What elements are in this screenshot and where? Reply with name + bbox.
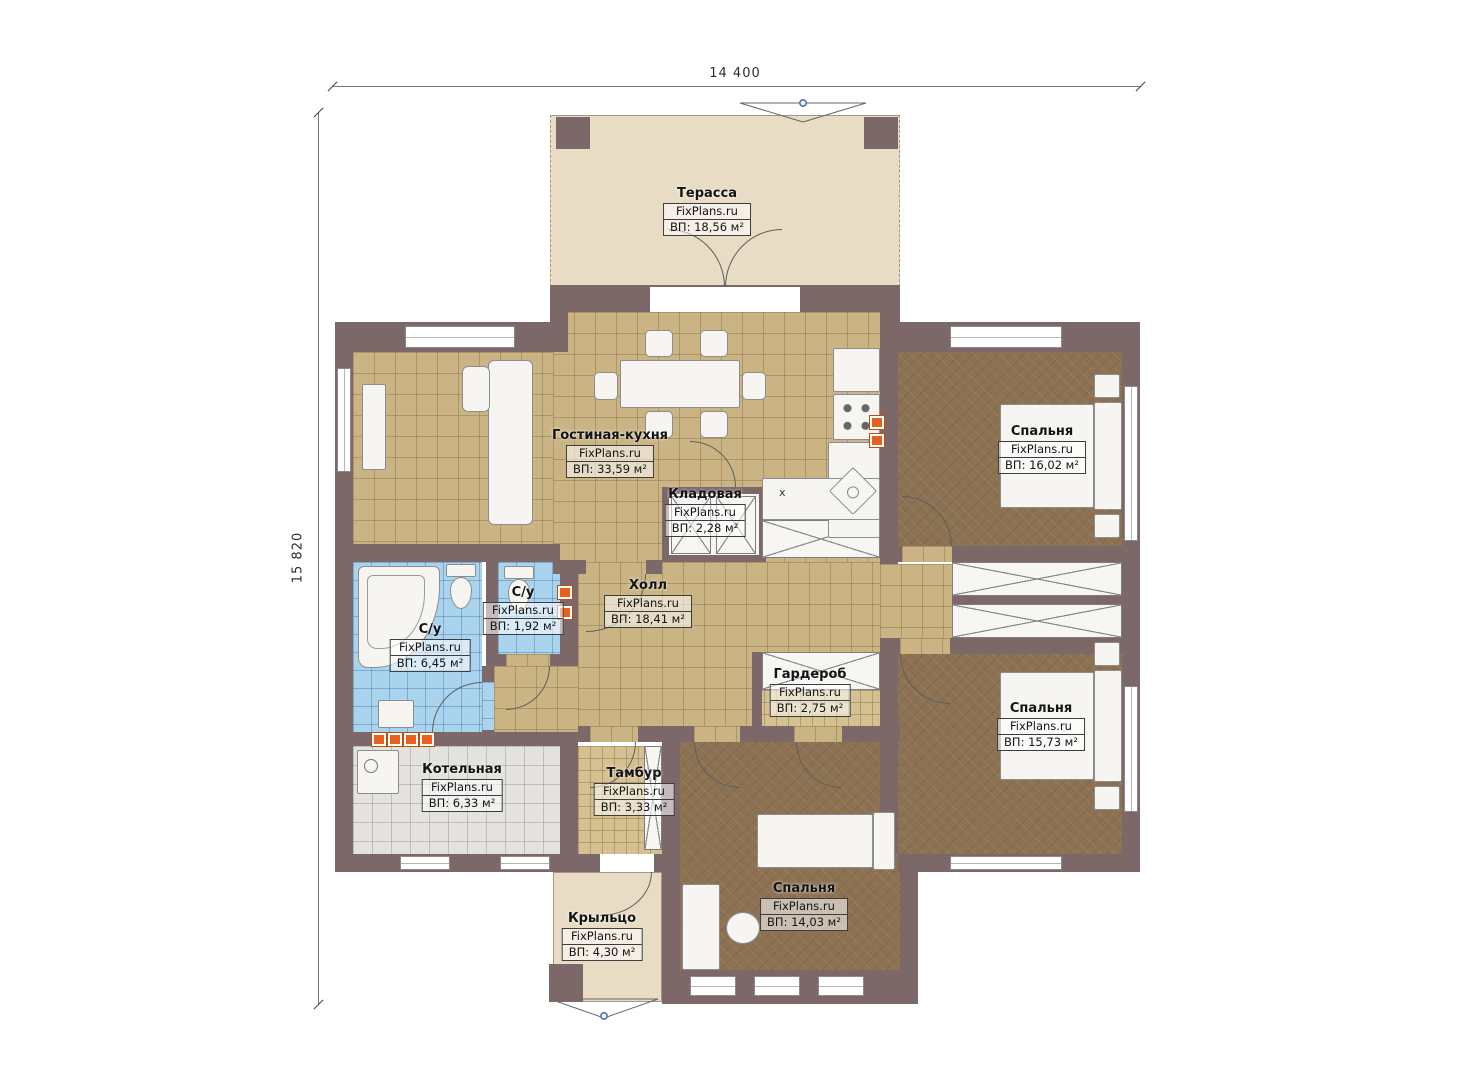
door-opening [590, 726, 638, 742]
window [950, 856, 1062, 870]
room-area: ВП: 18,41 м² [605, 612, 691, 627]
radiator-marker [420, 733, 434, 746]
room-info-box: FixPlans.ru ВП: 14,03 м² [760, 898, 848, 931]
window [400, 856, 450, 870]
window [1124, 386, 1138, 541]
brand-text: FixPlans.ru [666, 505, 745, 521]
wall [353, 732, 578, 746]
brand-text: FixPlans.ru [999, 442, 1085, 458]
brand-text: FixPlans.ru [484, 603, 563, 619]
room-area: ВП: 2,28 м² [666, 521, 745, 536]
window [405, 326, 515, 348]
nightstand [1094, 642, 1120, 666]
radiator-marker [870, 434, 884, 447]
dimension-label-top: 14 400 [660, 66, 810, 81]
washing-machine [378, 700, 414, 728]
brand-text: FixPlans.ru [567, 446, 653, 462]
window [754, 976, 800, 996]
wall [553, 560, 586, 574]
radiator-marker [372, 733, 386, 746]
room-area: ВП: 4,30 м² [563, 945, 642, 960]
room-info-box: FixPlans.ru ВП: 16,02 м² [998, 441, 1086, 474]
room-area: ВП: 18,56 м² [664, 220, 750, 235]
room-label-bedroom3: Спальня FixPlans.ru ВП: 14,03 м² [760, 881, 848, 931]
brand-text: FixPlans.ru [595, 784, 674, 800]
brand-text: FixPlans.ru [605, 596, 691, 612]
toilet-tank [504, 566, 534, 579]
radiator-marker [388, 733, 402, 746]
bed [757, 814, 873, 868]
desk-chair [726, 912, 760, 944]
brand-text: FixPlans.ru [563, 929, 642, 945]
brand-text: FixPlans.ru [391, 640, 470, 656]
room-area: ВП: 3,33 м² [595, 800, 674, 815]
terrace-door-opening [650, 287, 800, 312]
bed-headboard [1094, 402, 1122, 510]
chair [742, 372, 766, 400]
room-name: Котельная [422, 762, 503, 777]
brand-text: FixPlans.ru [761, 899, 847, 915]
floor-plan-canvas: 14 400 15 820 [0, 0, 1474, 1080]
window [500, 856, 550, 870]
chair [700, 330, 728, 357]
tv-unit [362, 384, 386, 470]
door-opening [794, 726, 842, 742]
room-label-bedroom1: Спальня FixPlans.ru ВП: 16,02 м² [998, 424, 1086, 474]
toilet-tank [446, 564, 476, 577]
brand-text: FixPlans.ru [771, 685, 850, 701]
room-area: ВП: 15,73 м² [998, 735, 1084, 750]
closet [952, 604, 1122, 638]
door-opening [600, 854, 654, 872]
bed-headboard [1094, 670, 1122, 782]
door-opening [506, 654, 550, 666]
window [950, 326, 1062, 348]
room-name: Гардероб [770, 667, 851, 682]
brand-text: FixPlans.ru [664, 204, 750, 220]
sofa-chaise [462, 366, 490, 412]
wall [560, 746, 578, 854]
sofa [488, 360, 533, 525]
room-info-box: FixPlans.ru ВП: 6,33 м² [422, 779, 503, 812]
room-label-living-kitchen: Гостиная-кухня FixPlans.ru ВП: 33,59 м² [552, 428, 668, 478]
room-info-box: FixPlans.ru ВП: 3,33 м² [594, 783, 675, 816]
room-name: С/у [390, 622, 471, 637]
dimension-line-top [332, 86, 1140, 87]
room-info-box: FixPlans.ru ВП: 18,41 м² [604, 595, 692, 628]
door-opening [694, 726, 740, 742]
room-info-box: FixPlans.ru ВП: 15,73 м² [997, 718, 1085, 751]
room-name: Крыльцо [562, 911, 643, 926]
room-label-terrace: Терасса FixPlans.ru ВП: 18,56 м² [663, 186, 751, 236]
desk [682, 884, 720, 970]
room-name: Кладовая [665, 487, 746, 502]
room-label-wardrobe: Гардероб FixPlans.ru ВП: 2,75 м² [770, 667, 851, 717]
room-label-hall: Холл FixPlans.ru ВП: 18,41 м² [604, 578, 692, 628]
brand-text: FixPlans.ru [423, 780, 502, 796]
kitchen-cabinet [833, 348, 880, 392]
chair [700, 411, 728, 438]
radiator-marker [870, 416, 884, 429]
nightstand [1094, 786, 1120, 810]
dimension-line-left [318, 112, 319, 1004]
nightstand [1094, 374, 1120, 398]
room-name: Спальня [760, 881, 848, 896]
room-name: Холл [604, 578, 692, 593]
window [818, 976, 864, 996]
room-area: ВП: 33,59 м² [567, 462, 653, 477]
room-info-box: FixPlans.ru ВП: 4,30 м² [562, 928, 643, 961]
room-name: Тамбур [594, 766, 675, 781]
room-label-porch: Крыльцо FixPlans.ru ВП: 4,30 м² [562, 911, 643, 961]
hall-corridor-floor [880, 564, 952, 638]
room-name: С/у [483, 585, 564, 600]
room-info-box: FixPlans.ru ВП: 33,59 м² [566, 445, 654, 478]
room-label-tambour: Тамбур FixPlans.ru ВП: 3,33 м² [594, 766, 675, 816]
window [1124, 686, 1138, 812]
room-name: Спальня [997, 701, 1085, 716]
chair [594, 372, 618, 400]
door-opening [900, 638, 950, 654]
dining-table [620, 360, 740, 408]
terrace-pillar [556, 117, 590, 149]
room-info-box: FixPlans.ru ВП: 18,56 м² [663, 203, 751, 236]
chair [645, 330, 673, 357]
room-name: Спальня [998, 424, 1086, 439]
boiler-unit [357, 750, 399, 794]
door-opening [482, 682, 494, 730]
wall [353, 544, 560, 562]
room-label-bathroom1: С/у FixPlans.ru ВП: 6,45 м² [390, 622, 471, 672]
room-area: ВП: 14,03 м² [761, 915, 847, 930]
nightstand [1094, 514, 1120, 538]
closet [952, 562, 1122, 596]
room-info-box: FixPlans.ru ВП: 1,92 м² [483, 602, 564, 635]
wall [752, 652, 762, 726]
entry-marker-top [736, 95, 872, 127]
counter-mark: х [779, 486, 786, 499]
dimension-label-left: 15 820 [291, 518, 306, 598]
room-area: ВП: 6,33 м² [423, 796, 502, 811]
terrace-pillar [864, 117, 898, 149]
room-info-box: FixPlans.ru ВП: 6,45 м² [390, 639, 471, 672]
room-area: ВП: 1,92 м² [484, 619, 563, 634]
room-area: ВП: 16,02 м² [999, 458, 1085, 473]
window [337, 368, 351, 472]
room-label-bedroom2: Спальня FixPlans.ru ВП: 15,73 м² [997, 701, 1085, 751]
room-area: ВП: 2,75 м² [771, 701, 850, 716]
room-info-box: FixPlans.ru ВП: 2,28 м² [665, 504, 746, 537]
room-area: ВП: 6,45 м² [391, 656, 470, 671]
room-info-box: FixPlans.ru ВП: 2,75 м² [770, 684, 851, 717]
window [690, 976, 736, 996]
radiator-marker [404, 733, 418, 746]
porch-pillar [549, 964, 583, 1002]
room-label-boiler: Котельная FixPlans.ru ВП: 6,33 м² [422, 762, 503, 812]
wall [646, 560, 662, 574]
room-label-bathroom2: С/у FixPlans.ru ВП: 1,92 м² [483, 585, 564, 635]
door-opening [902, 546, 952, 562]
room-name: Гостиная-кухня [552, 428, 668, 443]
brand-text: FixPlans.ru [998, 719, 1084, 735]
room-label-storage: Кладовая FixPlans.ru ВП: 2,28 м² [665, 487, 746, 537]
room-name: Терасса [663, 186, 751, 201]
bed-headboard [873, 812, 895, 870]
